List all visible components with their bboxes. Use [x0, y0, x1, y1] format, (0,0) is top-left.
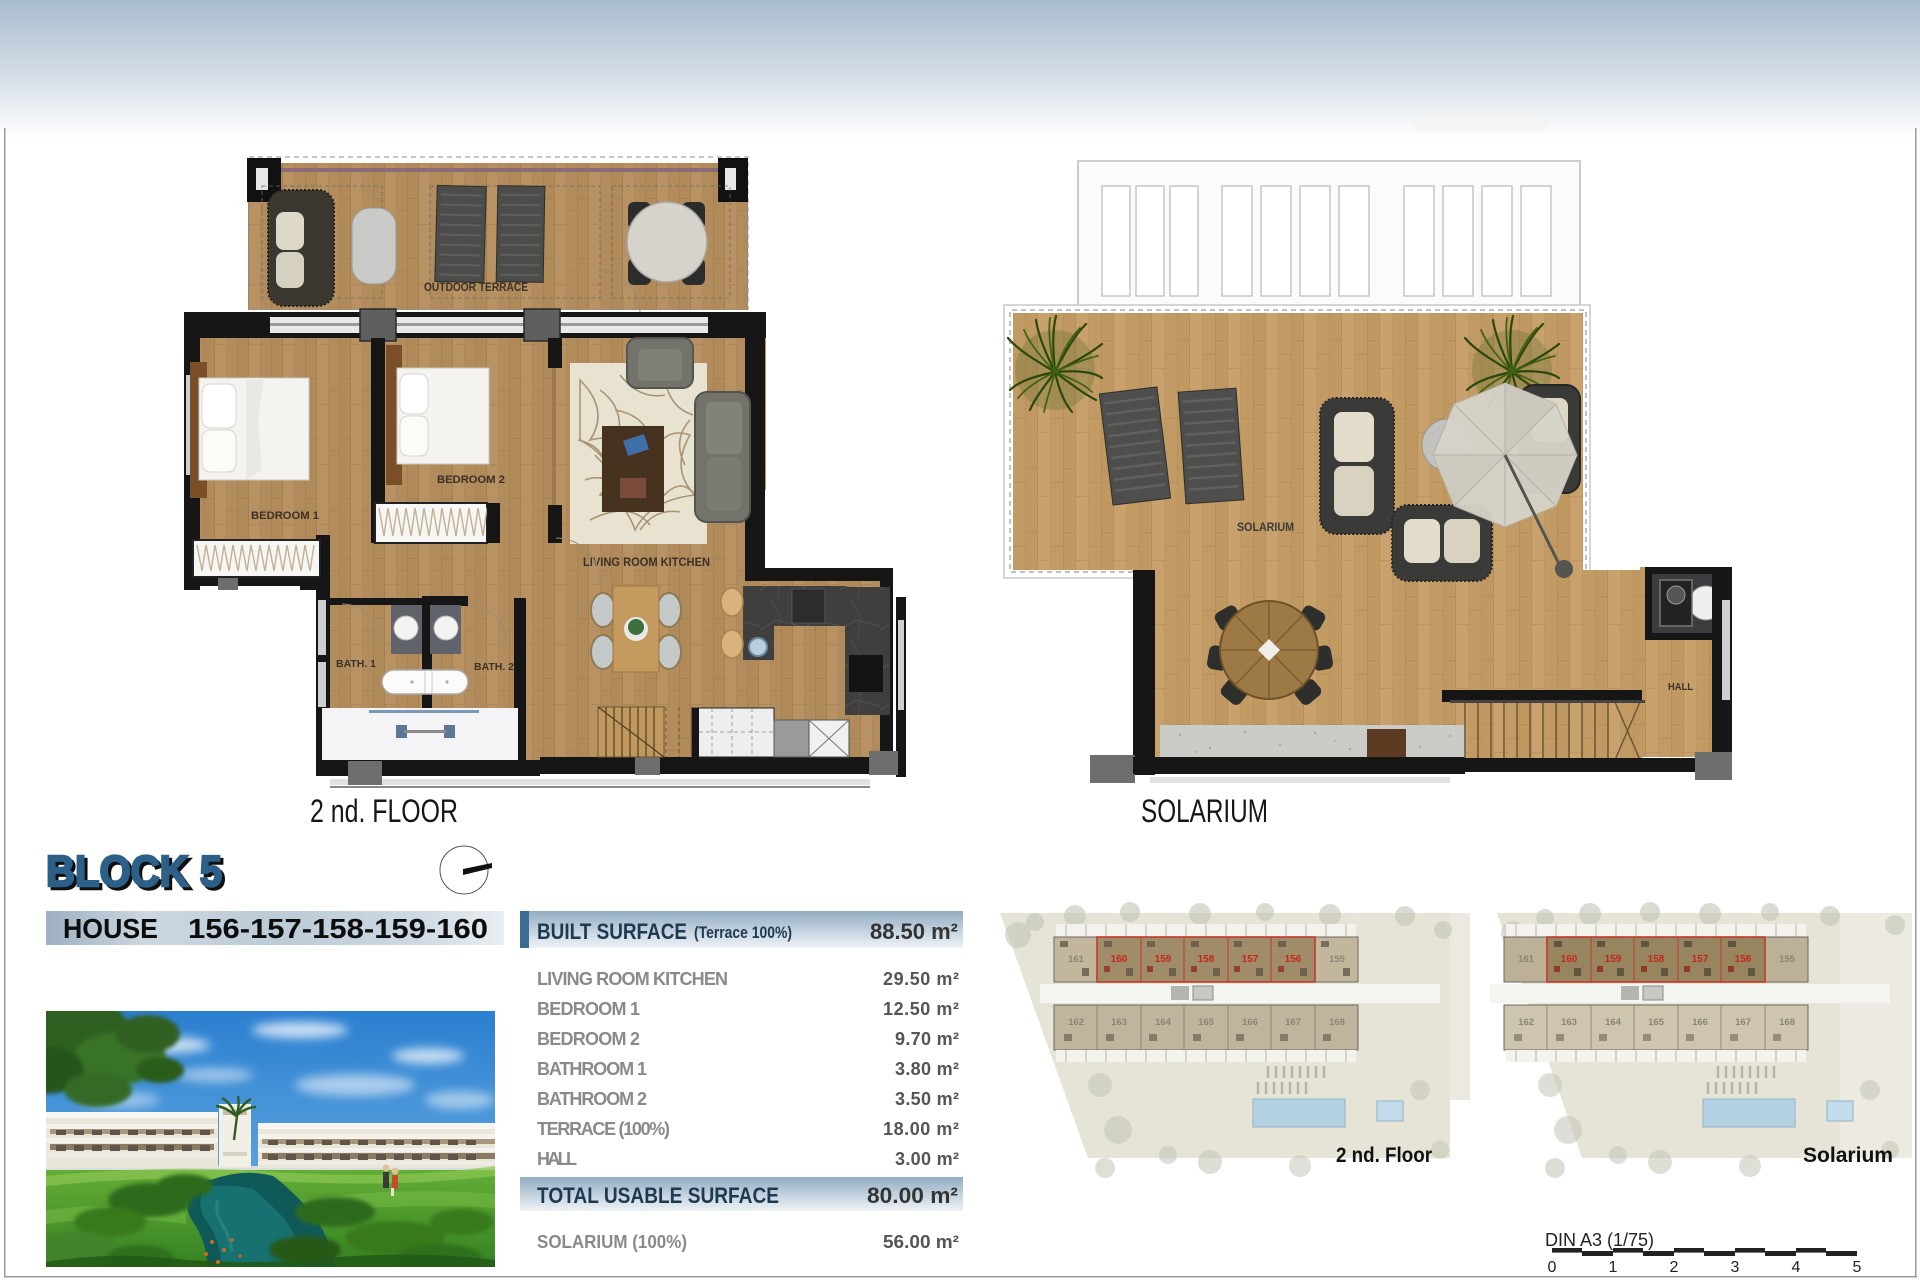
svg-text:BEDROOM 2: BEDROOM 2: [437, 474, 505, 486]
svg-text:LIVING ROOM KITCHEN: LIVING ROOM KITCHEN: [537, 969, 728, 989]
svg-text:BATHROOM 2: BATHROOM 2: [537, 1089, 647, 1109]
svg-text:BATH. 2: BATH. 2: [474, 662, 514, 673]
svg-text:157: 157: [1242, 954, 1259, 965]
svg-text:156: 156: [1285, 954, 1302, 965]
svg-text:156-157-158-159-160: 156-157-158-159-160: [188, 913, 488, 944]
svg-text:TERRACE (100%): TERRACE (100%): [537, 1119, 670, 1139]
svg-text:2 nd. FLOOR: 2 nd. FLOOR: [310, 793, 458, 829]
svg-text:166: 166: [1692, 1017, 1708, 1028]
svg-text:165: 165: [1648, 1017, 1665, 1028]
svg-text:12.50 m²: 12.50 m²: [883, 999, 959, 1019]
svg-text:161: 161: [1068, 954, 1085, 965]
svg-text:3.50 m²: 3.50 m²: [895, 1089, 959, 1109]
svg-text:SOLARIUM: SOLARIUM: [1237, 522, 1294, 534]
svg-text:163: 163: [1111, 1017, 1127, 1028]
svg-text:BEDROOM 1: BEDROOM 1: [251, 510, 319, 522]
svg-text:2 nd. Floor: 2 nd. Floor: [1336, 1144, 1432, 1167]
svg-text:166: 166: [1242, 1017, 1258, 1028]
svg-text:SOLARIUM (100%): SOLARIUM (100%): [537, 1232, 687, 1252]
svg-text:HALL: HALL: [537, 1149, 577, 1169]
svg-text:3.80 m²: 3.80 m²: [895, 1059, 959, 1079]
svg-text:HOUSE: HOUSE: [63, 913, 158, 944]
svg-text:155: 155: [1779, 954, 1796, 965]
svg-text:HALL: HALL: [1668, 681, 1694, 693]
svg-text:158: 158: [1648, 954, 1665, 965]
svg-text:0: 0: [1548, 1259, 1557, 1276]
svg-text:165: 165: [1198, 1017, 1215, 1028]
svg-text:OUTDOOR TERRACE: OUTDOOR TERRACE: [424, 280, 528, 294]
svg-text:Solarium: Solarium: [1803, 1144, 1893, 1167]
svg-text:9.70 m²: 9.70 m²: [895, 1029, 959, 1049]
svg-text:BEDROOM 1: BEDROOM 1: [537, 999, 640, 1019]
svg-text:156: 156: [1735, 954, 1752, 965]
svg-text:29.50 m²: 29.50 m²: [883, 969, 959, 989]
svg-text:TOTAL USABLE SURFACE: TOTAL USABLE SURFACE: [537, 1183, 779, 1208]
svg-text:BATH. 1: BATH. 1: [336, 659, 376, 670]
svg-text:163: 163: [1561, 1017, 1577, 1028]
svg-text:160: 160: [1561, 954, 1578, 965]
svg-text:159: 159: [1155, 954, 1172, 965]
svg-text:157: 157: [1692, 954, 1709, 965]
svg-text:3.00 m²: 3.00 m²: [895, 1149, 959, 1169]
svg-text:161: 161: [1518, 954, 1535, 965]
svg-text:18.00 m²: 18.00 m²: [883, 1119, 959, 1139]
svg-text:167: 167: [1735, 1017, 1751, 1028]
svg-text:168: 168: [1779, 1017, 1795, 1028]
svg-text:2: 2: [1670, 1259, 1679, 1276]
svg-text:162: 162: [1068, 1017, 1084, 1028]
svg-text:168: 168: [1329, 1017, 1345, 1028]
svg-text:BATHROOM 1: BATHROOM 1: [537, 1059, 647, 1079]
svg-text:1: 1: [1609, 1259, 1618, 1276]
svg-text:155: 155: [1329, 954, 1346, 965]
svg-text:4: 4: [1792, 1259, 1801, 1276]
svg-text:158: 158: [1198, 954, 1215, 965]
svg-text:56.00 m²: 56.00 m²: [883, 1232, 959, 1252]
svg-text:160: 160: [1111, 954, 1128, 965]
svg-text:SOLARIUM: SOLARIUM: [1141, 793, 1268, 829]
svg-text:167: 167: [1285, 1017, 1301, 1028]
svg-text:LIVING ROOM KITCHEN: LIVING ROOM KITCHEN: [583, 555, 710, 569]
svg-text:BEDROOM 2: BEDROOM 2: [537, 1029, 640, 1049]
svg-text:3: 3: [1731, 1259, 1740, 1276]
svg-text:(Terrace 100%): (Terrace 100%): [694, 923, 792, 942]
svg-text:159: 159: [1605, 954, 1622, 965]
svg-text:164: 164: [1605, 1017, 1622, 1028]
svg-text:164: 164: [1155, 1017, 1172, 1028]
svg-text:BUILT SURFACE: BUILT SURFACE: [537, 919, 687, 944]
svg-text:DIN A3 (1/75): DIN A3 (1/75): [1545, 1230, 1654, 1250]
svg-text:BLOCK 5: BLOCK 5: [46, 847, 222, 896]
svg-text:80.00 m²: 80.00 m²: [867, 1183, 958, 1208]
svg-text:5: 5: [1853, 1259, 1862, 1276]
svg-text:88.50 m²: 88.50 m²: [870, 919, 958, 944]
svg-text:162: 162: [1518, 1017, 1534, 1028]
